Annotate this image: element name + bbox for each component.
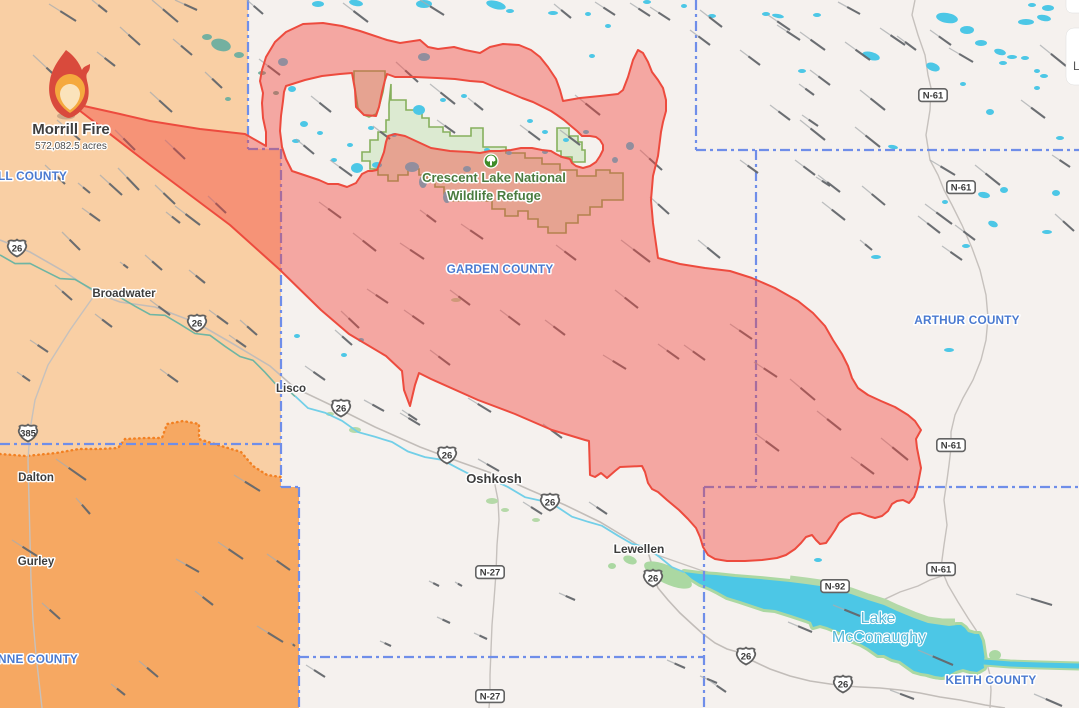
- svg-text:Wildlife Refuge: Wildlife Refuge: [447, 188, 541, 203]
- svg-text:N-27: N-27: [480, 692, 501, 703]
- svg-text:Gurley: Gurley: [18, 556, 55, 568]
- svg-text:26: 26: [838, 679, 849, 690]
- svg-text:ARTHUR COUNTY: ARTHUR COUNTY: [914, 313, 1020, 327]
- svg-text:26: 26: [442, 450, 453, 461]
- svg-text:Lewellen: Lewellen: [614, 542, 665, 556]
- svg-text:McConaughy: McConaughy: [832, 629, 926, 646]
- svg-text:Lake: Lake: [861, 610, 896, 627]
- svg-text:N-61: N-61: [941, 441, 962, 452]
- svg-text:26: 26: [336, 403, 347, 414]
- svg-text:N-92: N-92: [825, 582, 846, 593]
- svg-text:26: 26: [648, 573, 659, 584]
- svg-text:26: 26: [741, 651, 752, 662]
- svg-text:Dalton: Dalton: [18, 472, 54, 484]
- svg-text:26: 26: [192, 318, 203, 329]
- svg-text:Broadwater: Broadwater: [92, 288, 156, 300]
- svg-text:Oshkosh: Oshkosh: [466, 471, 522, 486]
- svg-text:Crescent Lake National: Crescent Lake National: [422, 170, 566, 185]
- svg-text:Morrill Fire: Morrill Fire: [32, 121, 110, 138]
- svg-text:LL COUNTY: LL COUNTY: [0, 169, 67, 183]
- svg-text:N-61: N-61: [923, 91, 944, 102]
- svg-text:26: 26: [12, 243, 23, 254]
- svg-text:572,082.5 acres: 572,082.5 acres: [35, 141, 107, 152]
- svg-text:N-27: N-27: [480, 568, 501, 579]
- svg-text:N-61: N-61: [951, 183, 972, 194]
- svg-text:GARDEN COUNTY: GARDEN COUNTY: [447, 262, 554, 276]
- svg-text:Lisco: Lisco: [276, 383, 306, 395]
- svg-text:L: L: [1073, 59, 1079, 73]
- svg-text:NNE COUNTY: NNE COUNTY: [0, 652, 78, 666]
- svg-text:26: 26: [545, 497, 556, 508]
- svg-text:N-61: N-61: [931, 565, 952, 576]
- svg-text:385: 385: [20, 428, 37, 439]
- svg-text:KEITH COUNTY: KEITH COUNTY: [946, 673, 1037, 687]
